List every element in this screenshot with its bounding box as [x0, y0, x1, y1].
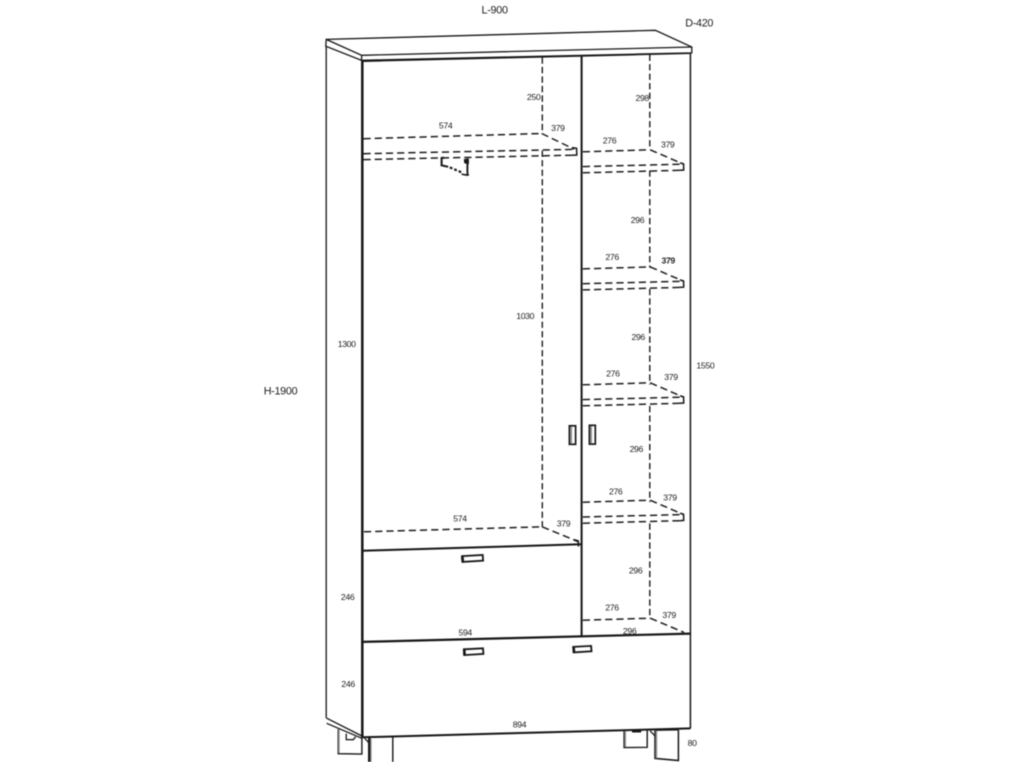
svg-text:L-900: L-900 [482, 5, 508, 17]
svg-text:379: 379 [664, 372, 678, 382]
svg-text:379: 379 [662, 610, 676, 620]
svg-text:379: 379 [551, 123, 565, 133]
svg-text:296: 296 [631, 215, 645, 225]
svg-text:574: 574 [439, 121, 453, 131]
svg-text:D-420: D-420 [685, 18, 713, 30]
svg-text:250: 250 [527, 92, 541, 102]
svg-text:298: 298 [635, 93, 649, 103]
svg-text:276: 276 [605, 252, 619, 262]
svg-text:379: 379 [661, 140, 675, 150]
svg-text:379: 379 [661, 256, 675, 266]
svg-text:276: 276 [609, 487, 623, 497]
svg-text:379: 379 [557, 519, 571, 529]
svg-text:594: 594 [458, 628, 472, 638]
svg-text:1030: 1030 [516, 311, 534, 321]
svg-text:276: 276 [603, 136, 617, 146]
svg-text:276: 276 [606, 369, 620, 379]
svg-text:1300: 1300 [338, 339, 356, 349]
svg-text:379: 379 [663, 492, 677, 502]
svg-text:296: 296 [631, 332, 645, 342]
svg-text:894: 894 [513, 720, 527, 730]
svg-text:246: 246 [341, 679, 355, 689]
svg-text:276: 276 [605, 602, 619, 612]
svg-text:574: 574 [453, 513, 467, 523]
svg-text:296: 296 [630, 444, 644, 454]
svg-text:1550: 1550 [696, 360, 714, 370]
svg-text:296: 296 [623, 626, 637, 636]
svg-text:80: 80 [688, 738, 697, 748]
svg-text:296: 296 [629, 566, 643, 576]
svg-text:H-1900: H-1900 [264, 386, 298, 398]
svg-text:246: 246 [341, 592, 355, 602]
